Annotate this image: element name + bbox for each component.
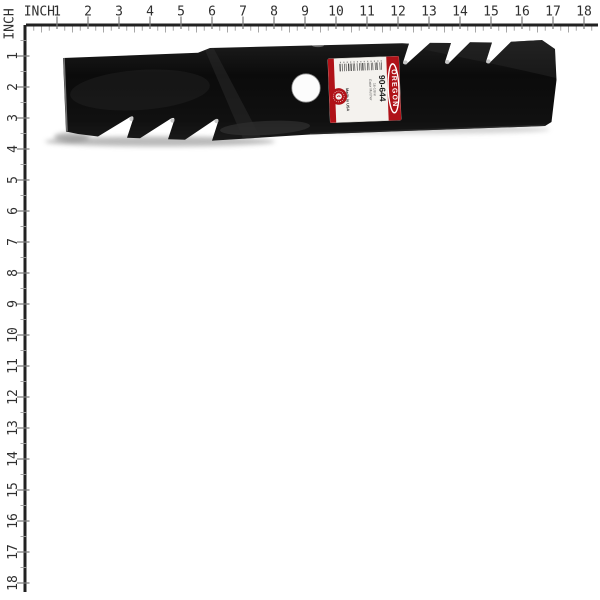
ruler-minor-tick (188, 27, 189, 31)
ruler-number: 6 (6, 207, 21, 215)
ruler-minor-tick (142, 27, 143, 31)
ruler-minor-tick (204, 27, 205, 31)
ruler-number: 6 (208, 5, 216, 20)
ruler-number: 8 (270, 5, 278, 20)
ruler-minor-tick (390, 27, 391, 31)
ruler-minor-tick (157, 27, 158, 31)
ruler-number: 13 (6, 420, 21, 436)
ruler-minor-tick (21, 102, 28, 103)
ruler-number: 9 (301, 5, 309, 20)
ruler-number: 14 (452, 5, 468, 20)
ruler-minor-tick (413, 27, 414, 33)
ruler-number: 4 (146, 5, 154, 20)
ruler-minor-tick (343, 27, 344, 31)
ruler-minor-tick (41, 27, 42, 33)
top-unit-label: INCH (24, 5, 55, 20)
ruler-number: 7 (6, 238, 21, 246)
ruler-number: 4 (6, 145, 21, 153)
ruler-number: 17 (6, 544, 21, 560)
ruler-minor-tick (21, 71, 28, 72)
ruler-number: 1 (6, 52, 21, 60)
ruler-minor-tick (21, 288, 28, 289)
ruler-minor-tick (382, 27, 383, 33)
ruler-minor-tick (21, 443, 28, 444)
ruler-minor-tick (134, 27, 135, 33)
ruler-minor-tick (436, 27, 437, 31)
ruler-minor-tick (49, 27, 50, 31)
top-ruler: 123456789101112131415161718 (26, 5, 598, 33)
ruler-minor-tick (126, 27, 127, 31)
oregon-logo-text: OREGON (390, 69, 398, 108)
ruler-number: 5 (177, 5, 185, 20)
ruler-minor-tick (545, 27, 546, 31)
ruler-minor-tick (21, 164, 28, 165)
gator-mulcher-blade: OREGON 90-644 16-1/8 in Gator Mulcher Ma… (63, 40, 557, 142)
ruler-number: 10 (328, 5, 344, 20)
ruler-minor-tick (196, 27, 197, 33)
ruler-minor-tick (374, 27, 375, 31)
ruler-minor-tick (72, 27, 73, 33)
ruler-minor-tick (537, 27, 538, 33)
ruler-minor-tick (452, 27, 453, 31)
ruler-minor-tick (80, 27, 81, 31)
ruler-number: 7 (239, 5, 247, 20)
ruler-minor-tick (21, 350, 28, 351)
left-unit-label: INCH (3, 8, 18, 39)
ruler-number: 18 (576, 5, 592, 20)
ruler-minor-tick (227, 27, 228, 33)
ruler-number: 18 (6, 575, 21, 591)
ruler-minor-tick (21, 226, 28, 227)
ruler-number: 15 (6, 482, 21, 498)
ruler-minor-tick (235, 27, 236, 31)
ruler-minor-tick (529, 27, 530, 31)
ruler-minor-tick (219, 27, 220, 31)
ruler-minor-tick (250, 27, 251, 31)
ruler-number: 11 (359, 5, 375, 20)
product-photo-canvas: OREGON 90-644 16-1/8 in Gator Mulcher Ma… (0, 0, 600, 600)
ruler-minor-tick (21, 319, 28, 320)
ruler-minor-tick (111, 27, 112, 31)
ruler-minor-tick (266, 27, 267, 31)
ruler-minor-tick (21, 536, 28, 537)
part-number: 90-644 (377, 75, 388, 102)
ruler-number: 3 (115, 5, 123, 20)
ruler-minor-tick (103, 27, 104, 33)
ruler-minor-tick (312, 27, 313, 31)
ruler-minor-tick (475, 27, 476, 33)
ruler-number: 12 (6, 389, 21, 405)
ruler-number: 11 (6, 358, 21, 374)
ruler-number: 16 (6, 513, 21, 529)
ruler-minor-tick (514, 27, 515, 31)
ruler-minor-tick (64, 27, 65, 31)
ruler-minor-tick (328, 27, 329, 31)
product-photo: OREGON 90-644 16-1/8 in Gator Mulcher Ma… (0, 0, 600, 600)
ruler-number: 15 (483, 5, 499, 20)
ruler-minor-tick (591, 27, 592, 31)
ruler-minor-tick (21, 567, 28, 568)
ruler-minor-tick (21, 257, 28, 258)
ruler-minor-tick (165, 27, 166, 33)
ruler-minor-tick (281, 27, 282, 31)
ruler-minor-tick (576, 27, 577, 31)
ruler-minor-tick (21, 40, 28, 41)
ruler-number: 2 (84, 5, 92, 20)
top-ruler-line (26, 24, 598, 27)
ruler-minor-tick (444, 27, 445, 33)
ruler-minor-tick (21, 505, 28, 506)
ruler-minor-tick (173, 27, 174, 31)
ruler-number: 12 (390, 5, 406, 20)
left-ruler-line (24, 25, 27, 592)
ruler-number: 17 (545, 5, 561, 20)
ruler-number: 16 (514, 5, 530, 20)
ruler-minor-tick (95, 27, 96, 31)
ruler-minor-tick (506, 27, 507, 33)
ruler-minor-tick (21, 133, 28, 134)
ruler-number: 9 (6, 300, 21, 308)
ruler-minor-tick (359, 27, 360, 31)
ruler-number: 10 (6, 327, 21, 343)
ruler-minor-tick (258, 27, 259, 33)
ruler-minor-tick (405, 27, 406, 31)
ruler-number: 3 (6, 114, 21, 122)
oregon-label: OREGON 90-644 16-1/8 in Gator Mulcher Ma… (328, 56, 401, 123)
ruler-number: 13 (421, 5, 437, 20)
ruler-minor-tick (33, 27, 34, 31)
ruler-number: 5 (6, 176, 21, 184)
ruler-minor-tick (351, 27, 352, 33)
ruler-number: 2 (6, 83, 21, 91)
left-ruler: 123456789101112131415161718 (6, 25, 30, 592)
ruler-minor-tick (467, 27, 468, 31)
ruler-minor-tick (21, 474, 28, 475)
ruler-minor-tick (560, 27, 561, 31)
ruler-minor-tick (21, 412, 28, 413)
ruler-minor-tick (568, 27, 569, 33)
ruler-minor-tick (297, 27, 298, 31)
ruler-minor-tick (498, 27, 499, 31)
ruler-number: 8 (6, 269, 21, 277)
ruler-minor-tick (21, 195, 28, 196)
blade-center-hole (292, 74, 320, 102)
ruler-minor-tick (320, 27, 321, 33)
ruler-minor-tick (21, 381, 28, 382)
ruler-minor-tick (289, 27, 290, 33)
ruler-minor-tick (421, 27, 422, 31)
ruler-minor-tick (483, 27, 484, 31)
ruler-number: 14 (6, 451, 21, 467)
